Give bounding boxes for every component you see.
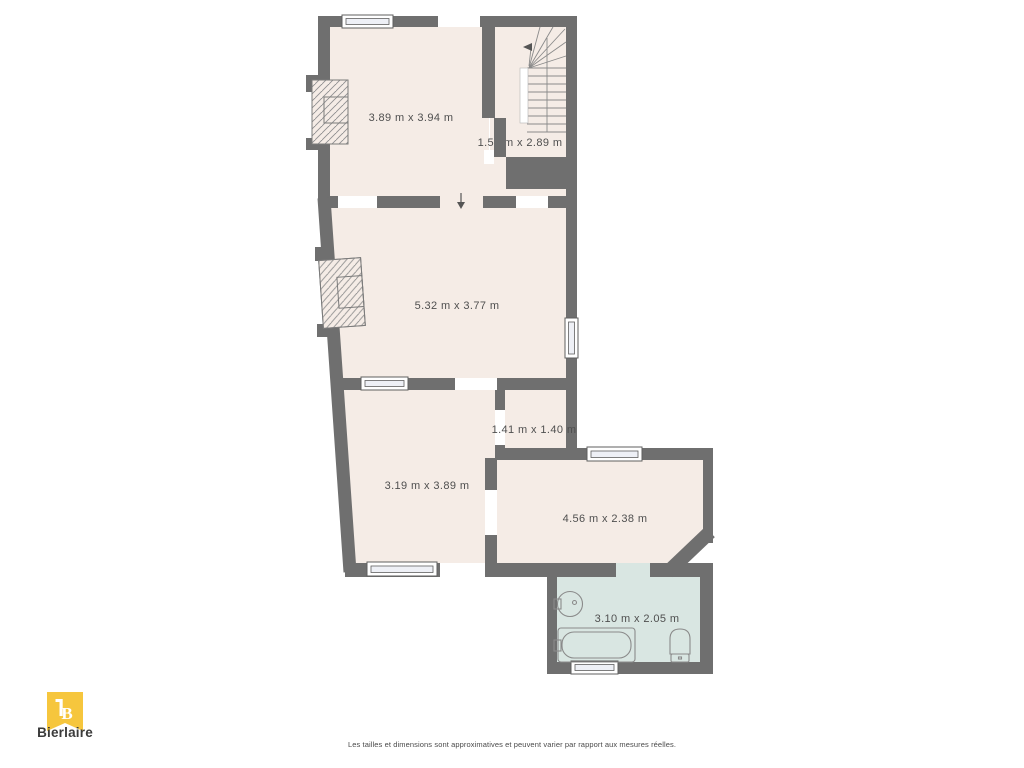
logo: B Bierlaire <box>37 692 93 740</box>
room-lower-left-floor <box>340 386 500 567</box>
room-label-stairwell: 1.58 m x 2.89 m <box>478 137 563 149</box>
room-top-floor <box>324 20 489 200</box>
stair-stringer <box>520 68 528 123</box>
wall-bathroom-left <box>547 563 557 674</box>
wall-stair-divider <box>482 16 495 118</box>
chimney-icon <box>319 258 366 329</box>
logo-monogram-flag <box>56 699 61 702</box>
opening-lower-right <box>485 490 497 535</box>
room-label-lower-left: 3.19 m x 3.89 m <box>385 480 470 492</box>
logo-monogram: B <box>61 704 72 723</box>
room-label-middle: 5.32 m x 3.77 m <box>415 300 500 312</box>
opening-hall-middle <box>516 196 548 208</box>
wall-right <box>566 16 577 460</box>
room-label-bathroom: 3.10 m x 2.05 m <box>595 613 680 625</box>
wall-bathroom-top <box>497 563 706 577</box>
room-label-top: 3.89 m x 3.94 m <box>369 112 454 124</box>
room-middle-floor <box>327 205 572 384</box>
window-icon <box>565 318 578 358</box>
window-icon <box>571 661 618 674</box>
opening-lower-bottom <box>440 563 485 577</box>
chimney-icon <box>312 80 348 144</box>
floor-plan-canvas: 1.58 m x 2.89 m <box>0 0 1024 768</box>
room-label-corridor: 1.41 m x 1.40 m <box>492 424 577 436</box>
window-icon <box>367 562 437 576</box>
logo-text: Bierlaire <box>37 725 93 740</box>
opening-bathroom-door <box>616 563 650 577</box>
wall-chimney-tab-3 <box>315 247 328 261</box>
opening-middle-lower <box>455 378 497 390</box>
opening-upper-left <box>338 196 377 208</box>
wall-stair-block <box>506 157 567 189</box>
window-icon <box>587 447 642 461</box>
wall-stair-divider-jog <box>494 118 506 157</box>
corridor-floor <box>498 386 570 454</box>
wall-bathroom-right <box>700 563 713 674</box>
opening-top-wall <box>438 16 480 27</box>
disclaimer-text: Les tailles et dimensions sont approxima… <box>348 740 676 749</box>
opening-stair-hall <box>484 150 494 164</box>
window-icon <box>361 377 408 390</box>
room-label-right: 4.56 m x 2.38 m <box>563 513 648 525</box>
window-icon <box>342 15 393 28</box>
